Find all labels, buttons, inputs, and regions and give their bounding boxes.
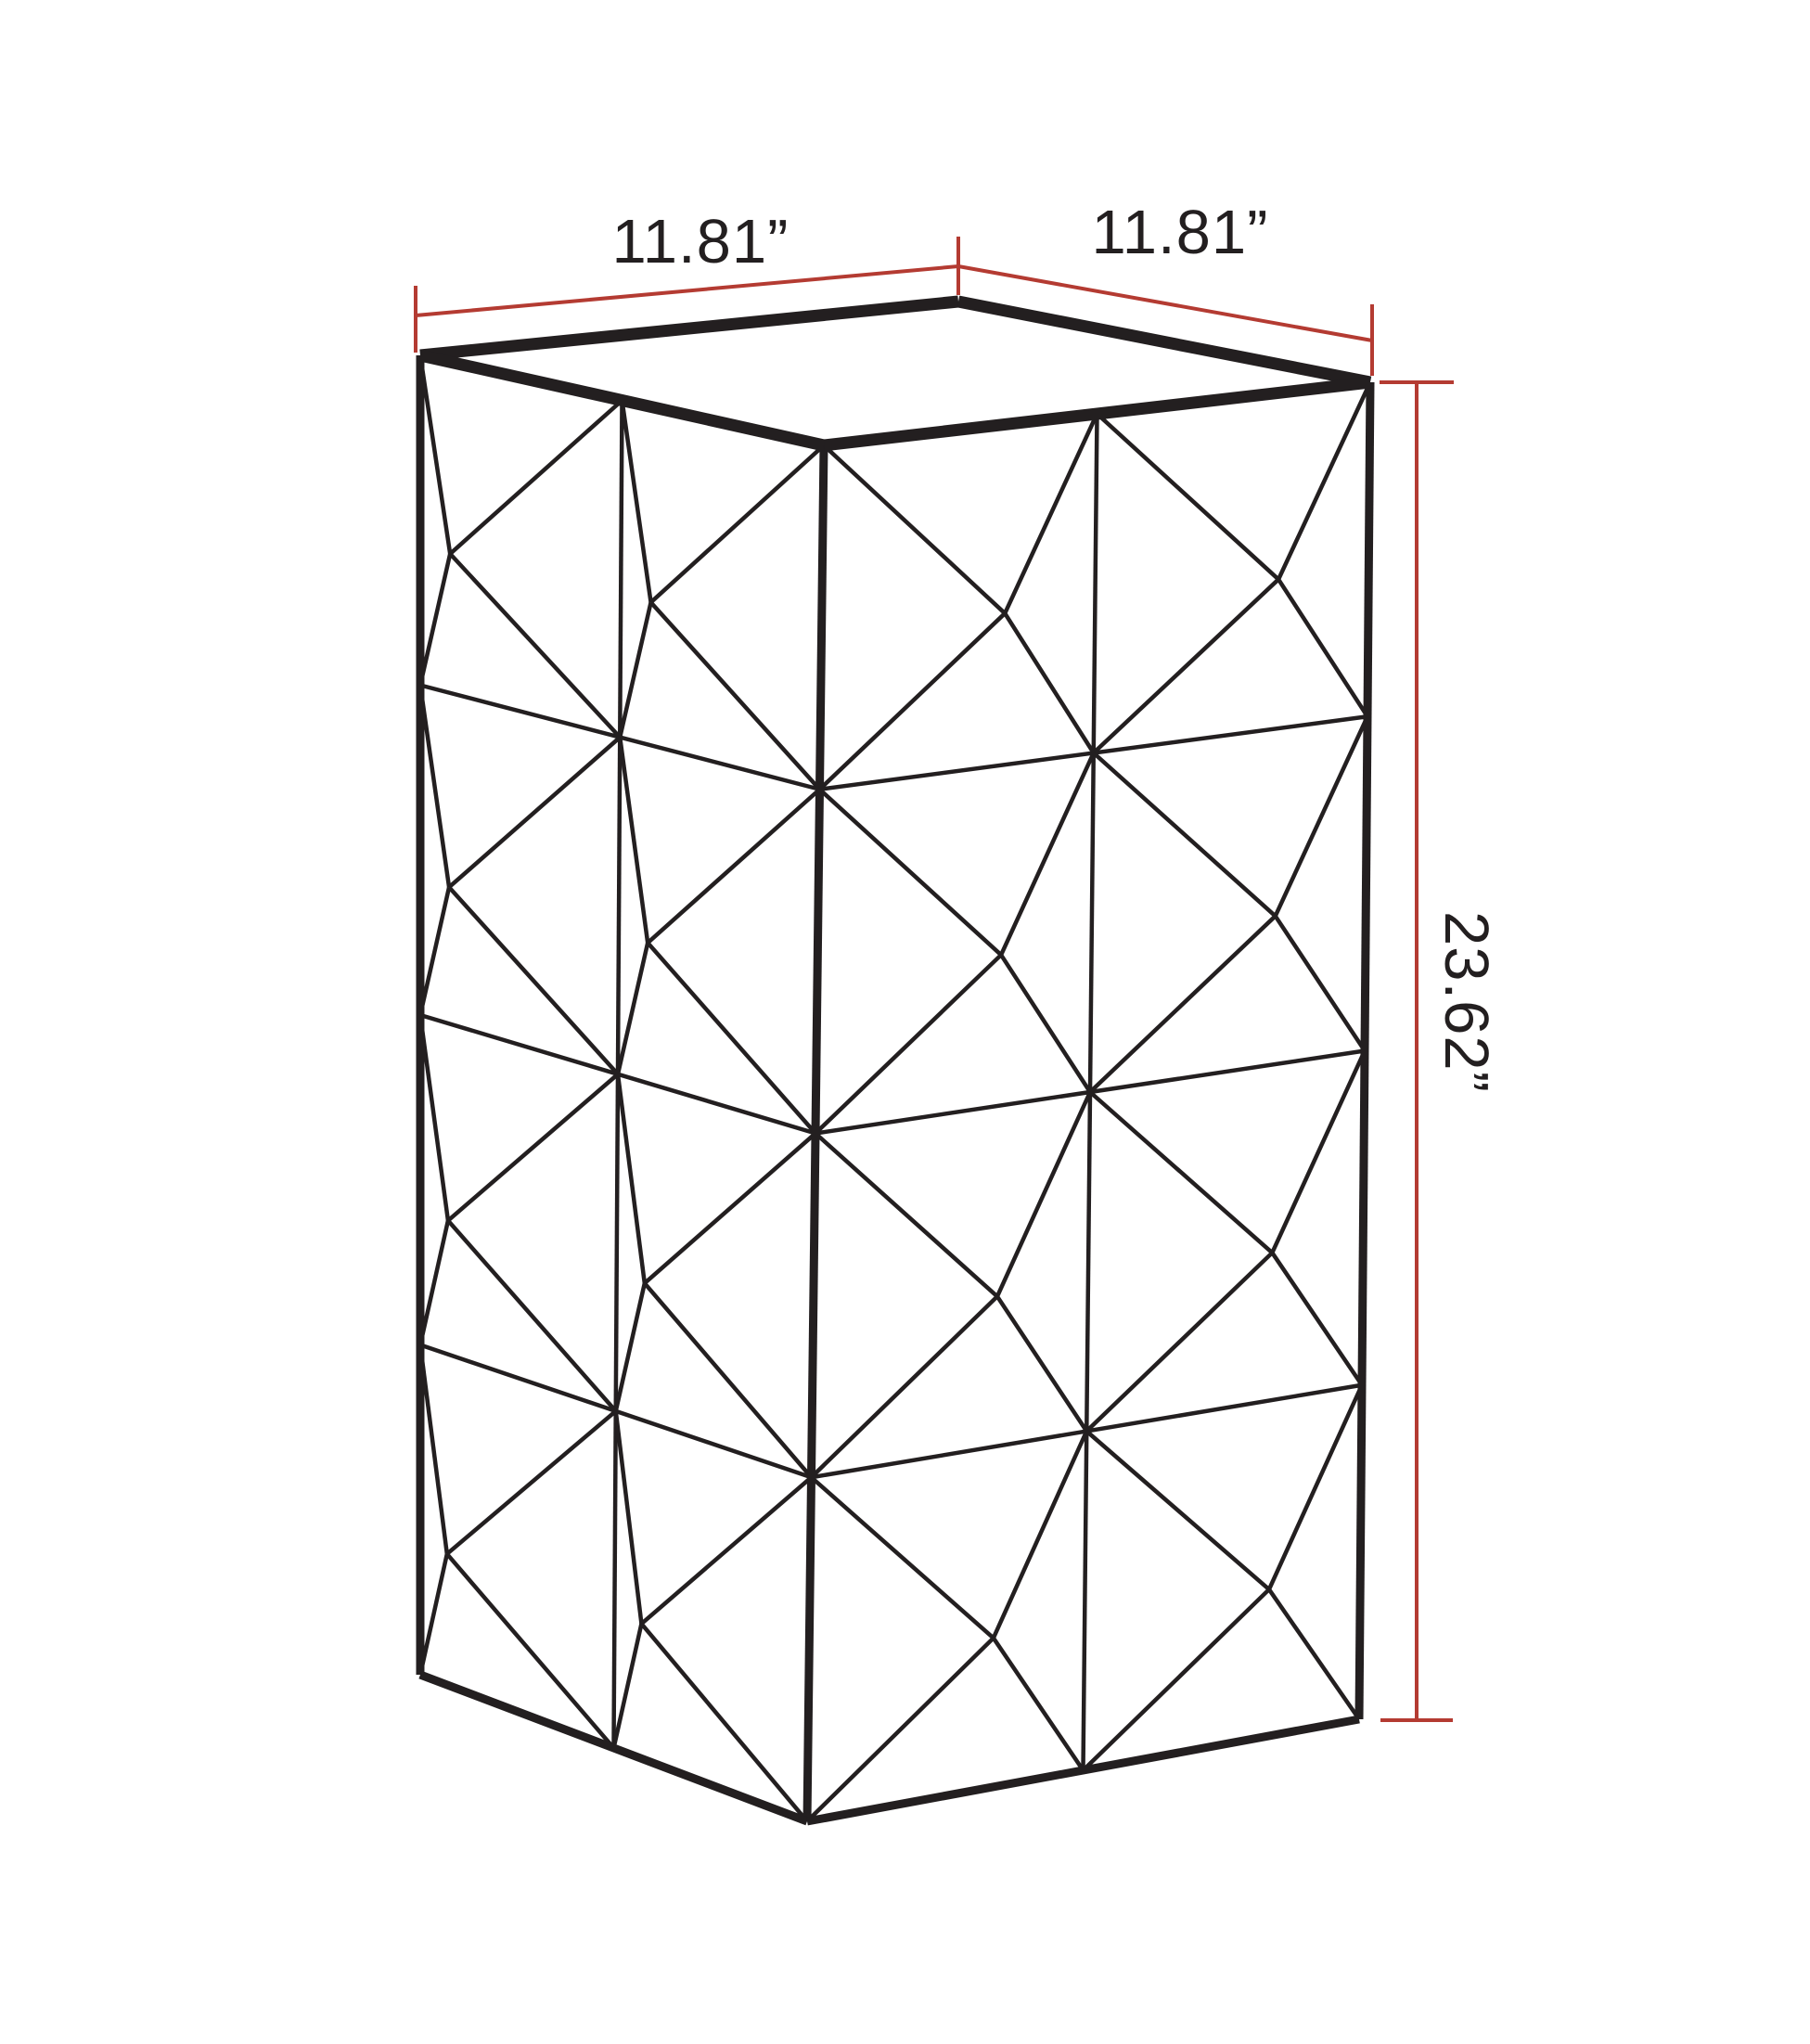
depth-dimension-label-right: 11.81” xyxy=(1059,197,1301,269)
box-top-face-edges xyxy=(420,302,1370,445)
right-face-facet-pattern xyxy=(807,382,1370,1821)
dimension-diagram-svg xyxy=(0,0,1810,2044)
left-face-facet-pattern xyxy=(420,355,824,1821)
height-dimension-label: 23.62” xyxy=(1433,880,1498,1125)
dim-top-right-line xyxy=(958,266,1372,376)
width-dimension-label-left: 11.81” xyxy=(580,206,821,278)
box-side-edges xyxy=(420,355,1370,1821)
dimension-drawing-page: 11.81” 11.81” 23.62” xyxy=(0,0,1810,2044)
